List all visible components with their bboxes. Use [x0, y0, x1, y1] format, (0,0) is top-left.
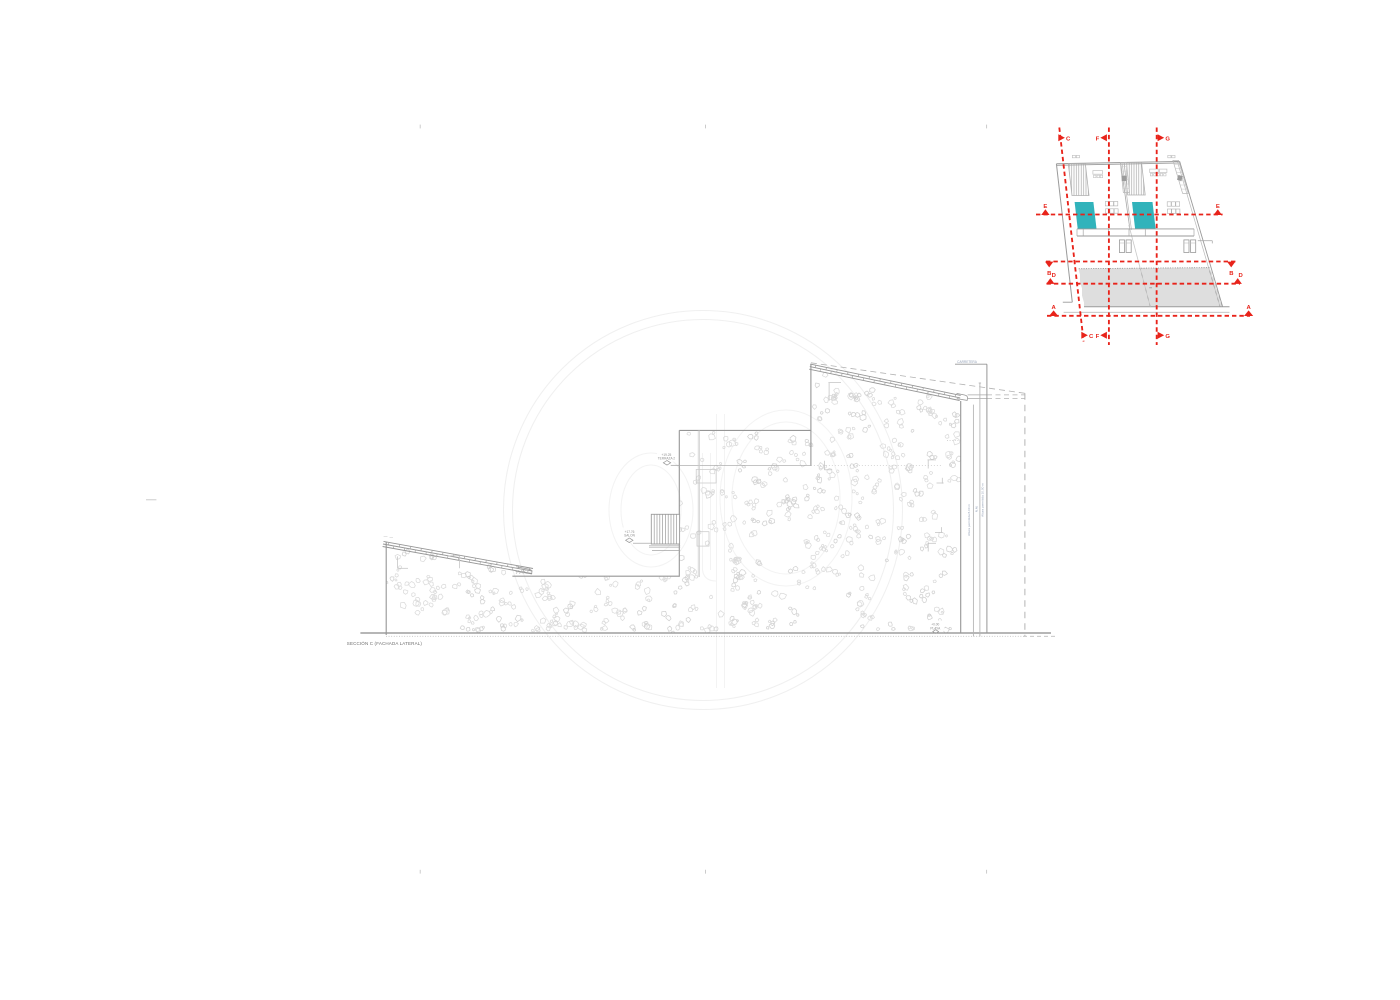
svg-text:F: F	[1096, 137, 1100, 143]
svg-text:B: B	[1229, 271, 1233, 277]
svg-text:G: G	[1165, 334, 1170, 340]
svg-text:SALON: SALON	[624, 534, 636, 538]
svg-text:Altura permitida 8.00 m: Altura permitida 8.00 m	[967, 504, 971, 536]
svg-text:Altura permitida 10.00 m: Altura permitida 10.00 m	[981, 483, 985, 517]
svg-text:N.M.: N.M.	[975, 506, 979, 513]
svg-text:A: A	[1246, 305, 1251, 311]
svg-text:G: G	[1165, 137, 1170, 143]
svg-text:C: C	[1066, 137, 1071, 143]
svg-text:CARRETERA: CARRETERA	[957, 360, 978, 364]
svg-text:D: D	[1052, 273, 1056, 279]
svg-text:PLAYA: PLAYA	[930, 626, 941, 630]
svg-text:D: D	[1238, 273, 1242, 279]
svg-text:C: C	[1089, 334, 1094, 340]
svg-text:A: A	[1051, 305, 1056, 311]
svg-text:TERRAZA 2: TERRAZA 2	[658, 457, 676, 461]
svg-text:F: F	[1096, 334, 1100, 340]
svg-text:E: E	[1216, 204, 1220, 210]
svg-text:E: E	[1043, 204, 1047, 210]
svg-text:SECCIÓN C (FACHADA LATERAL): SECCIÓN C (FACHADA LATERAL)	[347, 640, 423, 646]
